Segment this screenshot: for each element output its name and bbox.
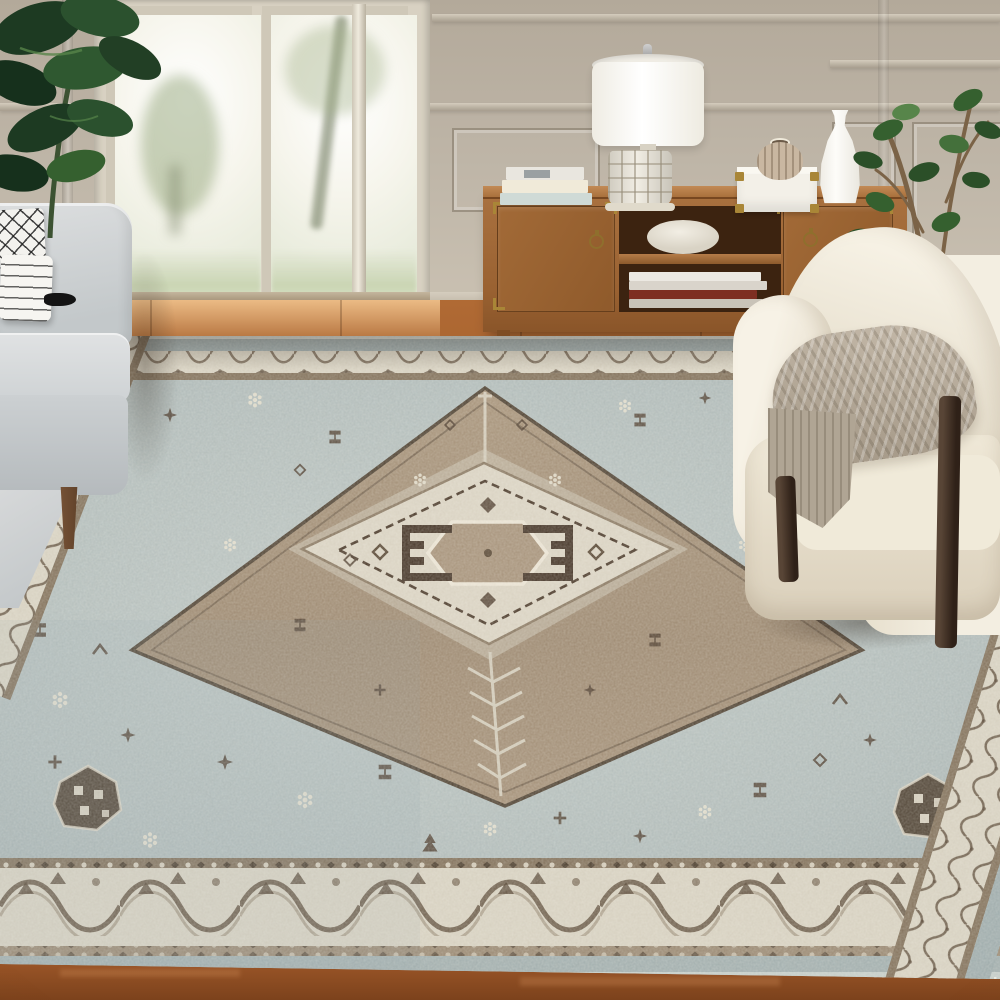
pillow-tassel [44, 293, 76, 306]
fiddle-leaf-plant [0, 0, 170, 238]
sofa-seat-cushion [0, 333, 130, 403]
plant-leaves [0, 0, 168, 197]
sofa-base [0, 395, 128, 495]
sofa-front-corner [0, 490, 72, 608]
armchair-wood-post-right [935, 396, 961, 648]
living-room-scene [0, 0, 1000, 1000]
pillow-striped [0, 254, 53, 322]
sofa [0, 195, 145, 615]
armchair [700, 200, 1000, 660]
armchair-leg-front [775, 476, 799, 583]
